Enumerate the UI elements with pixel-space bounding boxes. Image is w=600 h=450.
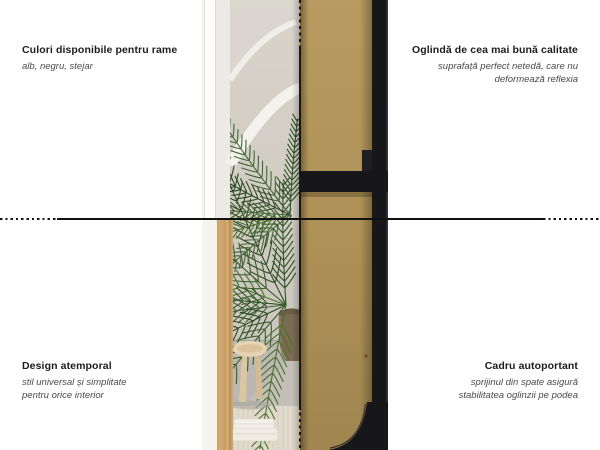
callout-subtitle-line: deformează reflexia [412,73,578,86]
callout-frame-colors: Culori disponibile pentru rame alb, negr… [22,44,177,73]
callout-timeless-design: Design atemporal stil universal și simpl… [22,360,127,403]
callout-mirror-quality: Oglindă de cea mai bună calitate suprafa… [412,44,578,87]
mirror-front-photo [196,0,300,450]
front-back-split-edge [299,46,301,410]
vertical-dashed-line-bottom [299,406,301,450]
folded-towels [232,419,278,441]
callout-subtitle: stil universal și simplitate pentru oric… [22,376,127,403]
callout-subtitle-line: stabilitatea oglinzii pe podea [459,389,578,402]
callout-subtitle: alb, negru, stejar [22,60,177,73]
callout-subtitle: suprafață perfect netedă, care nu deform… [412,60,578,87]
callout-title: Oglindă de cea mai bună calitate [412,44,578,56]
horizontal-dotted-line-left [0,218,57,220]
mirror-back-photo [300,0,388,450]
callout-title: Design atemporal [22,360,127,372]
callout-subtitle-line: pentru orice interior [22,389,127,402]
callout-title: Cadru autoportant [459,360,578,372]
oak-frame-strip [217,220,233,450]
vertical-dashed-line-top [299,0,301,58]
callout-subtitle: sprijinul din spate asigură stabilitatea… [459,376,578,403]
mirror-front-illustration [196,0,300,450]
mirror-back-illustration [300,0,388,450]
callout-subtitle-line: alb, negru, stejar [22,60,177,73]
horizontal-dotted-line-right [543,218,600,220]
infographic-canvas: Culori disponibile pentru rame alb, negr… [0,0,600,450]
mdf-back-panel [300,0,372,450]
callout-title: Culori disponibile pentru rame [22,44,177,56]
horizontal-divider-line [57,218,543,220]
callout-subtitle-line: sprijinul din spate asigură [459,376,578,389]
callout-self-supporting-frame: Cadru autoportant sprijinul din spate as… [459,360,578,403]
callout-subtitle-line: suprafață perfect netedă, care nu [412,60,578,73]
callout-subtitle-line: stil universal și simplitate [22,376,127,389]
support-crossbar [300,171,388,192]
